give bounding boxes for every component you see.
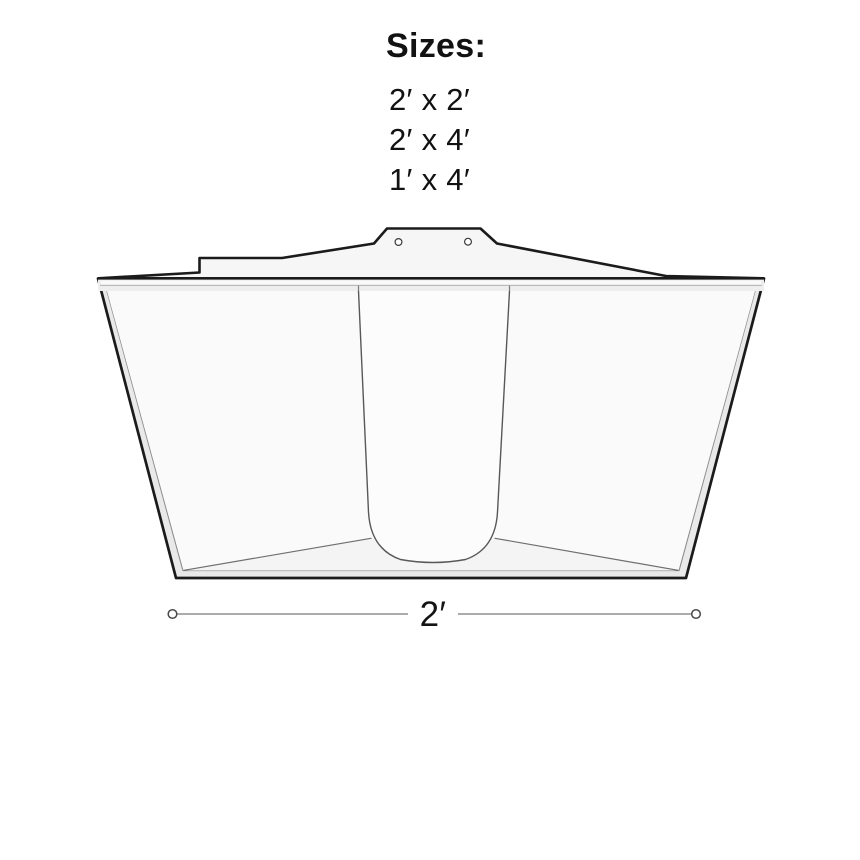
screw-hole-left (395, 239, 402, 246)
troffer-fixture-line-drawing: 2′ (0, 0, 860, 860)
housing (99, 229, 764, 279)
flange-highlight (101, 281, 761, 285)
reflector-left-wall (107, 291, 370, 571)
reflector-right-wall (496, 291, 755, 571)
width-dimension-label: 2′ (420, 595, 447, 634)
housing-top-profile (99, 229, 764, 279)
screw-hole-right (465, 238, 472, 245)
center-lens (359, 291, 510, 563)
dimension-endpoint-right (692, 610, 701, 619)
product-diagram-page: Sizes: 2′ x 2′ 2′ x 4′ 1′ x 4′ (0, 0, 860, 860)
flange (98, 279, 764, 292)
flange-band (98, 279, 764, 292)
dimension-endpoint-left (168, 610, 177, 619)
width-dimension: 2′ (168, 595, 700, 634)
